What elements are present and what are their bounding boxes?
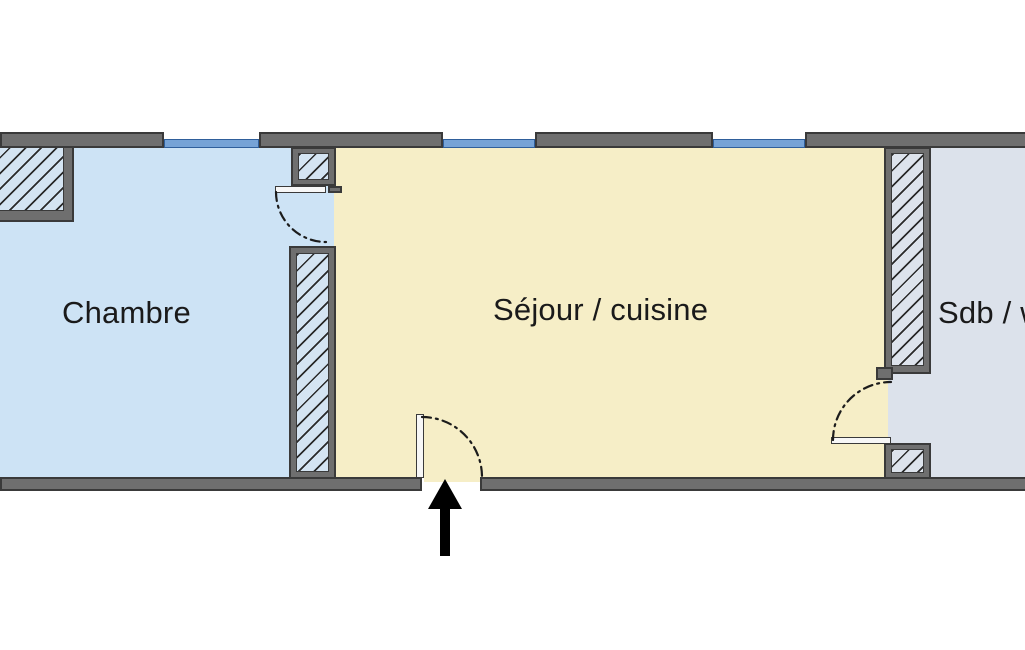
partition-pier-sdb-bottom xyxy=(891,449,924,473)
window-3 xyxy=(713,139,805,148)
entrance-arrow-icon xyxy=(428,479,462,556)
door-leaf-sdb xyxy=(831,437,891,444)
door-frame-stop-chambre xyxy=(328,186,342,193)
exterior-wall-top-segment-2 xyxy=(259,132,443,148)
window-2 xyxy=(443,139,535,148)
exterior-wall-bottom-left xyxy=(0,477,422,491)
exterior-wall-bottom-right xyxy=(480,477,1025,491)
window-1 xyxy=(164,139,259,148)
room-label-sejour-cuisine: Séjour / cuisine xyxy=(493,292,708,328)
exterior-wall-top-segment-3 xyxy=(535,132,713,148)
door-leaf-chambre xyxy=(275,186,326,193)
exterior-wall-top-segment-4 xyxy=(805,132,1025,148)
hatched-wall-block xyxy=(0,147,64,211)
entrance-threshold xyxy=(424,476,480,482)
partition-pier-sdb-top xyxy=(891,153,924,366)
floor-plan: Chambre Séjour / cuisine Sdb / w xyxy=(0,0,1025,650)
partition-pier-chambre-top xyxy=(298,153,329,180)
exterior-wall-top-segment-1 xyxy=(0,132,164,148)
partition-pier-chambre-bottom xyxy=(296,253,329,472)
door-leaf-entrance xyxy=(416,414,424,478)
room-label-chambre: Chambre xyxy=(62,295,191,331)
door-frame-stop-sdb xyxy=(876,367,893,380)
room-label-sdb-wc: Sdb / w xyxy=(938,295,1025,331)
